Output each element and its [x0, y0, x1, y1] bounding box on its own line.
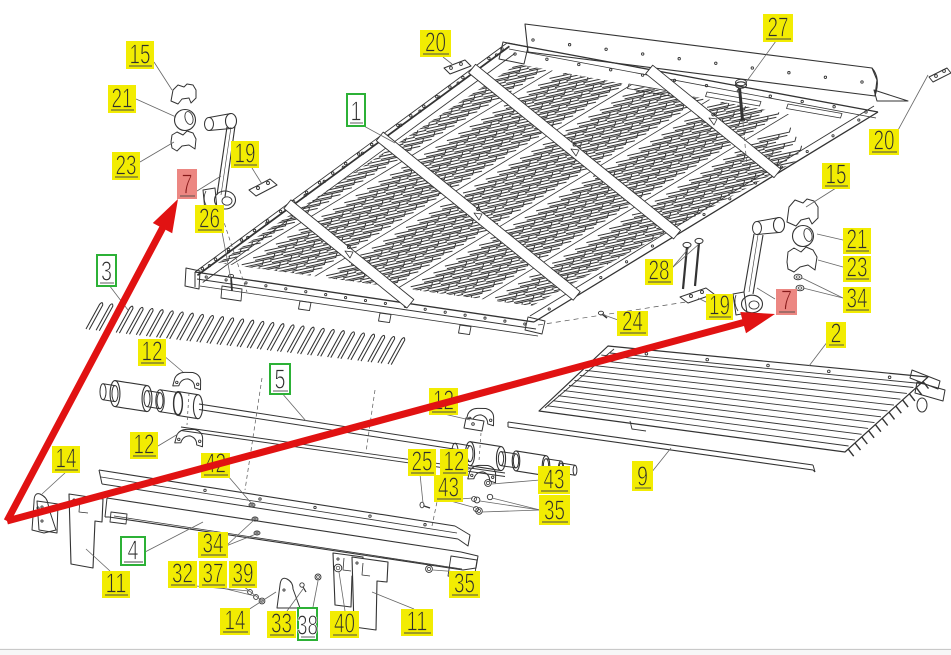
- svg-text:4: 4: [128, 535, 139, 566]
- svg-text:20: 20: [425, 27, 446, 58]
- svg-text:35: 35: [454, 568, 475, 599]
- svg-text:21: 21: [847, 224, 868, 255]
- svg-text:34: 34: [847, 283, 868, 314]
- svg-text:15: 15: [130, 39, 151, 70]
- svg-text:27: 27: [768, 12, 789, 43]
- svg-text:28: 28: [649, 255, 670, 286]
- svg-text:5: 5: [275, 364, 286, 395]
- svg-text:43: 43: [544, 464, 565, 495]
- svg-text:23: 23: [116, 150, 137, 181]
- svg-text:3: 3: [101, 256, 112, 287]
- svg-text:21: 21: [112, 83, 133, 114]
- svg-text:32: 32: [172, 558, 193, 589]
- svg-text:2: 2: [831, 318, 842, 349]
- svg-text:24: 24: [622, 306, 643, 337]
- svg-text:23: 23: [847, 252, 868, 283]
- svg-text:19: 19: [235, 138, 256, 169]
- svg-text:7: 7: [781, 285, 792, 316]
- svg-text:20: 20: [874, 125, 895, 156]
- svg-text:40: 40: [334, 608, 355, 639]
- svg-text:15: 15: [826, 159, 847, 190]
- svg-text:14: 14: [225, 605, 246, 636]
- svg-text:14: 14: [56, 443, 77, 474]
- svg-text:35: 35: [544, 495, 565, 526]
- svg-text:37: 37: [203, 558, 224, 589]
- svg-text:11: 11: [106, 568, 127, 599]
- svg-text:9: 9: [637, 461, 648, 492]
- svg-text:7: 7: [182, 169, 193, 200]
- svg-text:25: 25: [412, 446, 433, 477]
- svg-text:39: 39: [233, 558, 254, 589]
- svg-text:1: 1: [351, 96, 362, 127]
- svg-text:12: 12: [134, 429, 155, 460]
- svg-text:38: 38: [297, 610, 318, 641]
- svg-text:11: 11: [407, 606, 428, 637]
- svg-text:34: 34: [203, 528, 224, 559]
- svg-text:12: 12: [142, 336, 163, 367]
- svg-text:19: 19: [709, 290, 730, 321]
- svg-text:43: 43: [438, 472, 459, 503]
- svg-text:33: 33: [271, 608, 292, 639]
- svg-text:26: 26: [199, 203, 220, 234]
